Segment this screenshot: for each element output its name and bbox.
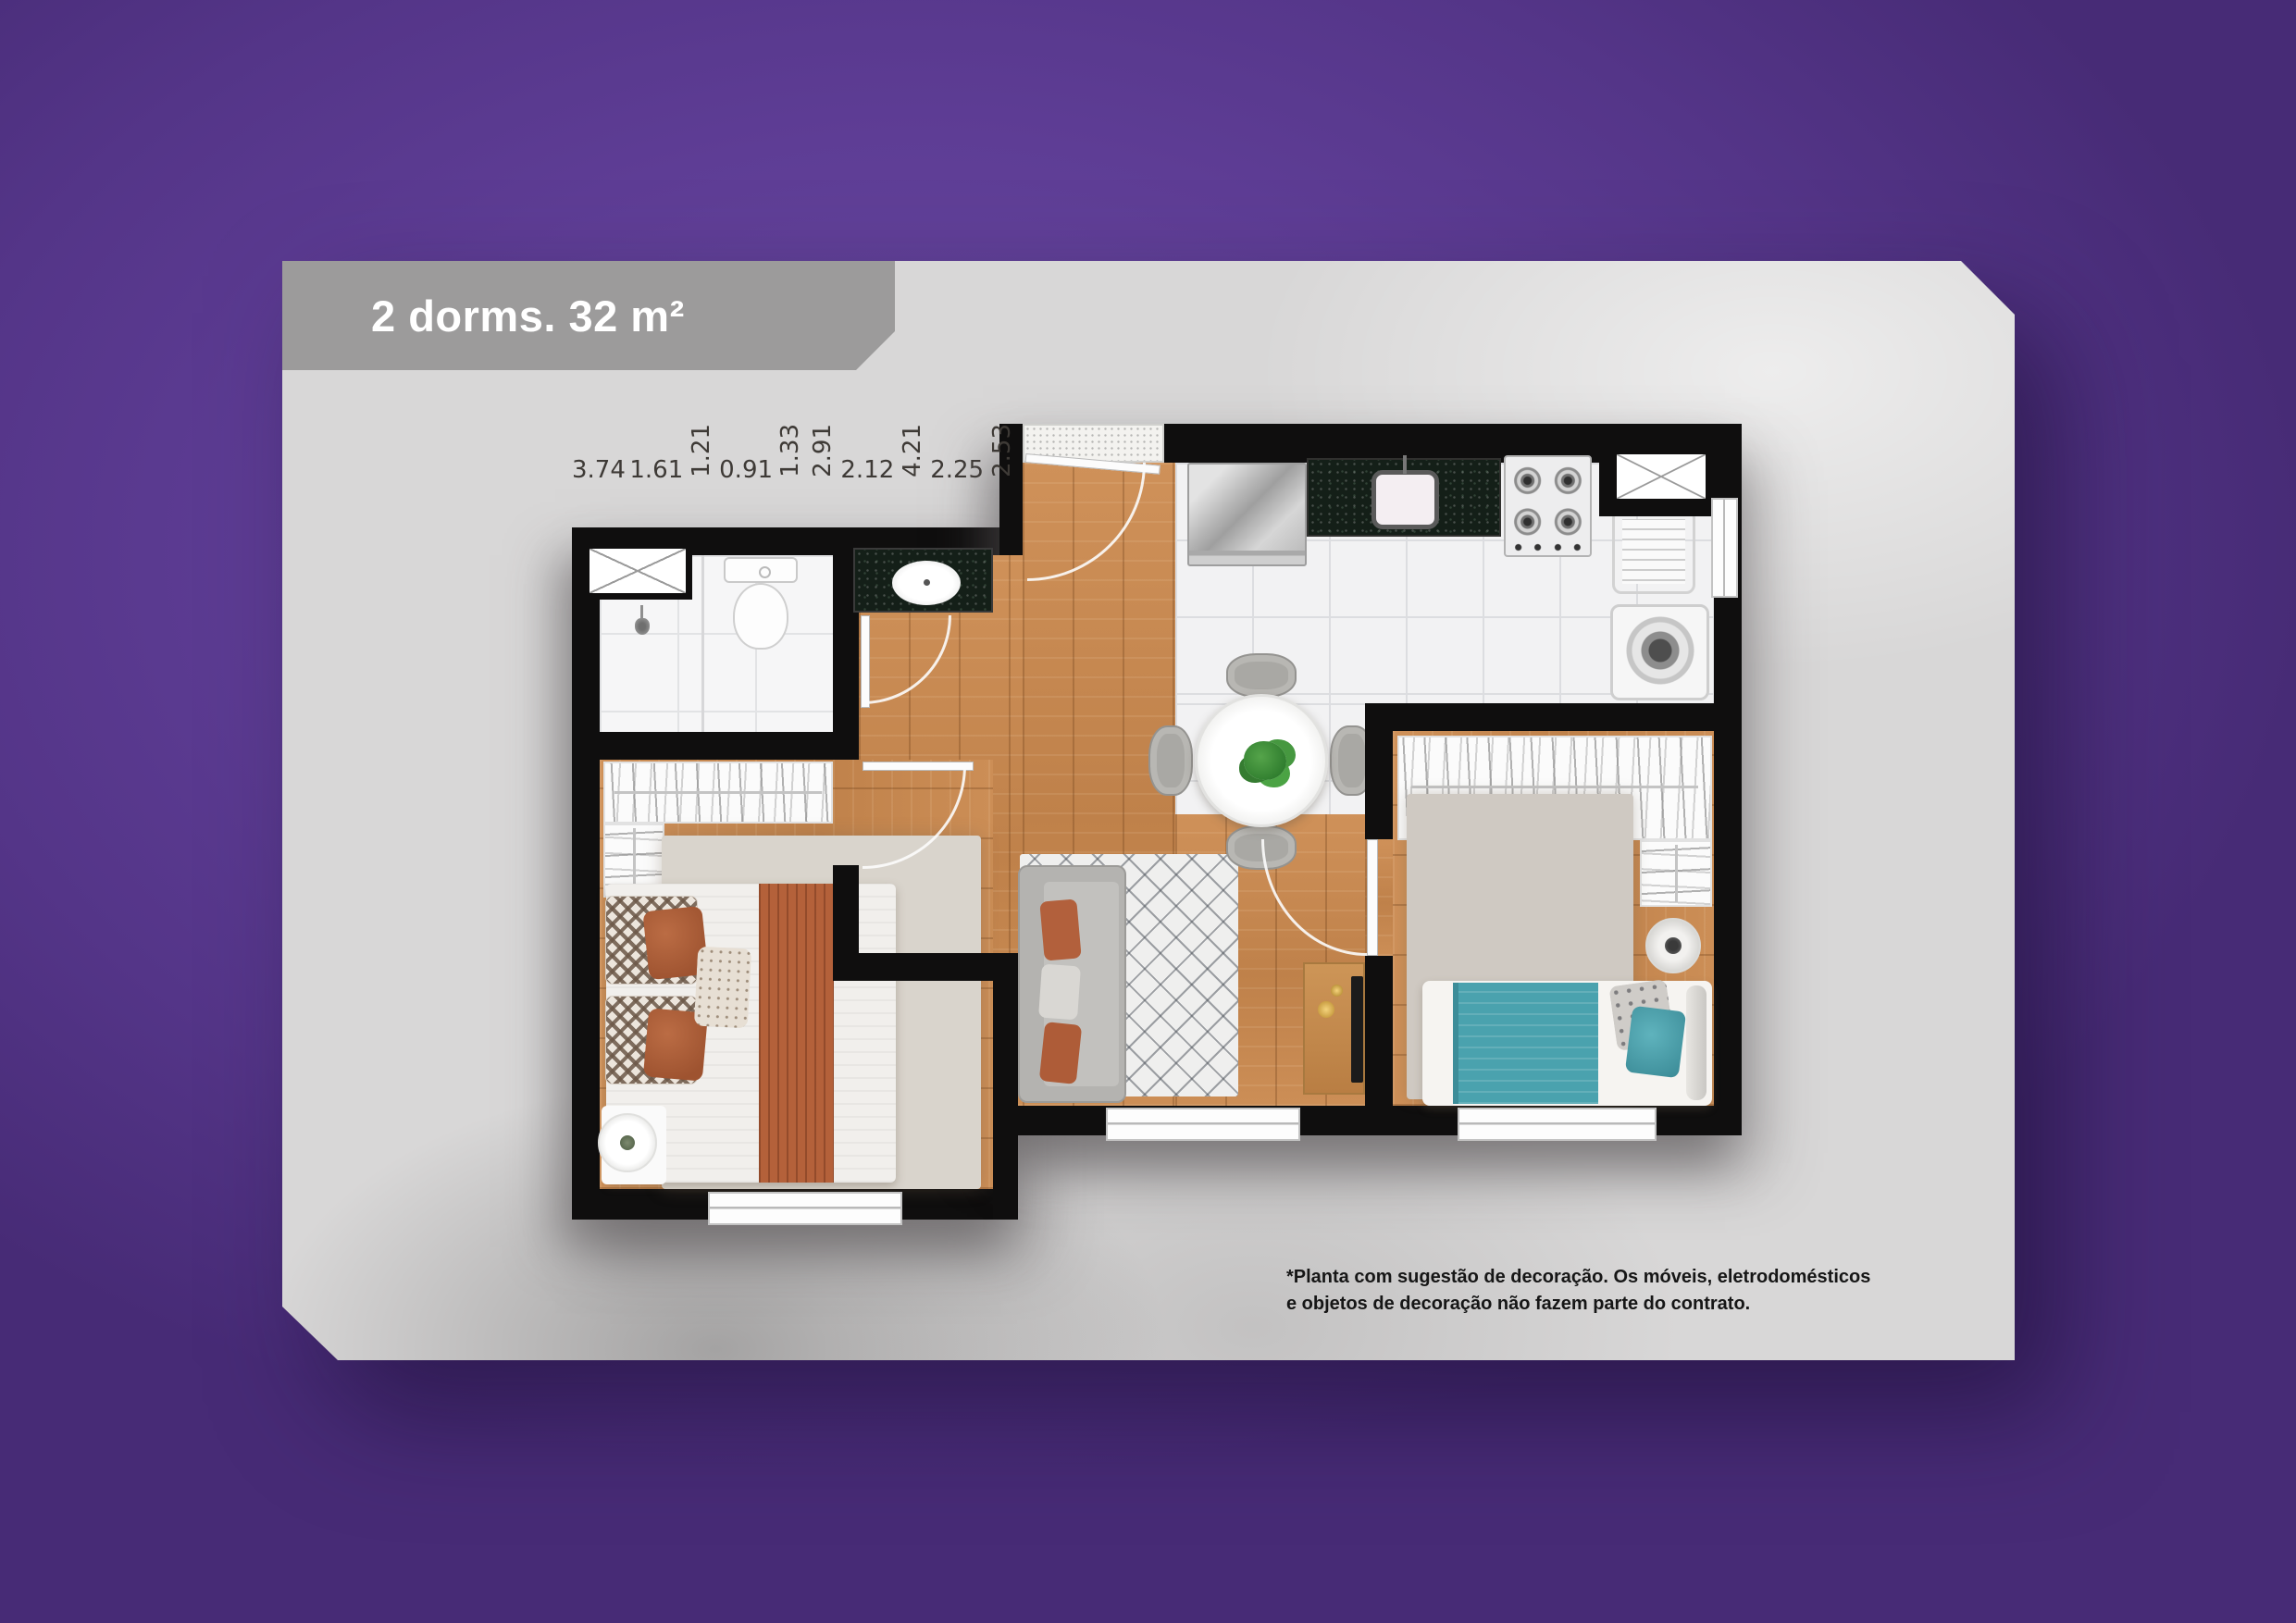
shower-glass-divider [701,555,704,732]
dim-laundry-width: 1.33 [776,424,804,477]
disclaimer-line-2: e objetos de decoração não fazem parte d… [1286,1291,1916,1318]
sofa-pillow-light [1038,964,1081,1021]
washing-machine [1610,604,1709,700]
shower-head-icon [633,605,653,637]
dining-table [1195,694,1328,827]
wall-bedroom1-east-lower [993,953,1018,1220]
page-title: 2 dorms. 32 m² [282,291,685,341]
wall-bedroom1-east-upper [833,865,859,953]
shaft-kitchen [1610,448,1712,505]
bedroom2-door-leaf [1367,839,1378,956]
single-bed-teal-blanket [1453,983,1598,1104]
sofa-pillow-terracotta-1 [1039,898,1081,960]
bedroom2-side-table [1645,918,1701,973]
dim-hallway-length: 2.91 [809,424,837,477]
dim-bedroom2-length: 2.53 [988,424,1016,477]
laundry-window [1711,498,1738,598]
dim-bedroom2-closet-width: 2.12 [840,456,894,484]
living-room-window [1106,1108,1300,1141]
floor-plan: 3.74 1.61 1.21 0.91 1.33 2.91 2.12 4.21 … [572,424,1742,1227]
vanity-counter [853,548,993,613]
pillow-knit [694,947,751,1029]
wall-bedroom2-west-lower [1365,956,1393,1135]
bedroom2-window [1458,1108,1657,1141]
dim-living-width: 2.25 [930,456,984,484]
fridge [1187,463,1307,566]
kitchen-faucet-icon [1397,455,1412,474]
wall-bedroom1-north-jog [833,953,1018,981]
dim-living-length: 4.21 [899,424,926,477]
dim-hall-entry-width: 3.74 [572,456,626,484]
stove [1504,455,1592,557]
dining-chair-west [1148,725,1193,796]
bedroom1-closet-top [603,762,833,824]
bedroom2-closet-right [1640,840,1712,907]
title-banner: 2 dorms. 32 m² [282,261,895,370]
bed-runner-terracotta [759,884,834,1183]
toilet-tank [724,557,798,583]
bedroom1-side-table [598,1113,657,1172]
dining-chair-north [1226,653,1297,698]
sofa-pillow-terracotta-2 [1039,1022,1082,1084]
kitchen-sink [1371,470,1439,529]
pillow-bolster [1686,985,1706,1100]
tv [1351,976,1363,1083]
toilet-bowl [733,583,788,650]
wall-kitchen-south [1365,703,1742,731]
table-plant [1244,741,1286,780]
bedroom1-window [708,1192,902,1225]
wall-bathroom-bedroom1-divider [572,732,859,760]
disclaimer-line-1: *Planta com sugestão de decoração. Os mó… [1286,1264,1916,1291]
decor-gold-large [1318,1001,1334,1018]
dim-vanity-width: 0.91 [719,456,773,484]
shaft-bathroom [583,542,692,600]
dim-shower-width: 1.61 [629,456,683,484]
decor-gold-small [1331,985,1343,997]
disclaimer: *Planta com sugestão de decoração. Os mó… [1286,1264,1916,1318]
vanity-sink [892,561,961,605]
dim-bathroom-width: 1.21 [688,424,715,477]
laundry-sink [1612,509,1695,594]
pillow-teal [1625,1006,1686,1079]
page: { "title_banner": { "label": "2 dorms. 3… [0,0,2296,1623]
